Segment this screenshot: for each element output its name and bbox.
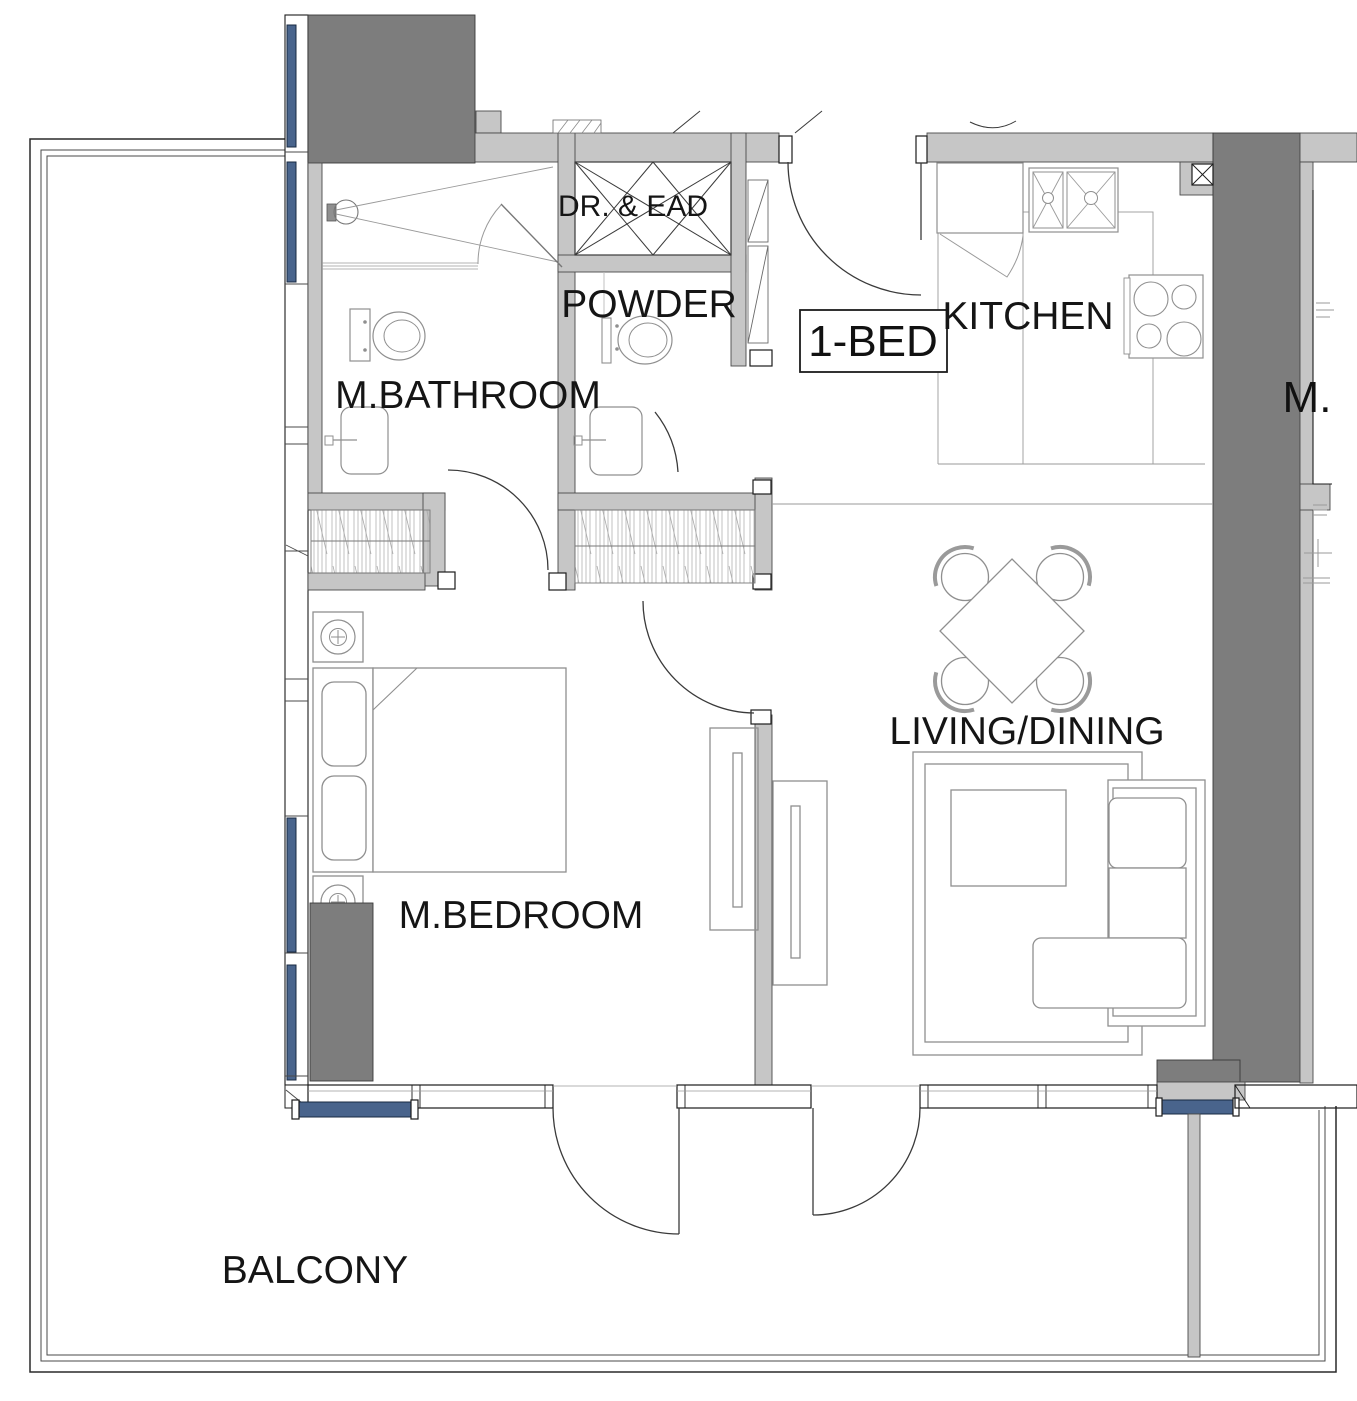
- mattress: [373, 668, 566, 872]
- toilet-icon: [350, 309, 425, 361]
- wardrobe-right-cap-top: [753, 480, 771, 494]
- balcony-wall-band: [292, 1085, 1357, 1357]
- entry-door-jamb: [779, 136, 792, 163]
- wardrobe-right-side-wall: [755, 478, 772, 590]
- kitchen-top-wall: [927, 133, 1213, 162]
- nightstand-lamp-top: [313, 612, 363, 662]
- floor-plan-canvas: DR. & EAD POWDER M.BATHROOM 1-BED KITCHE…: [0, 0, 1357, 1401]
- dark-stub: [1157, 1060, 1240, 1082]
- hall-wall-jamb: [750, 350, 772, 366]
- sofa-chaise: [1033, 938, 1186, 1008]
- stove-icon: [1124, 275, 1203, 358]
- room-label-powder: POWDER: [561, 283, 737, 326]
- window-glazing: [287, 818, 296, 952]
- bedroom-door-jamb: [751, 710, 771, 724]
- fridge-cabinet: [937, 163, 1023, 277]
- balcony-window-sill: [296, 1102, 414, 1117]
- bed: [313, 668, 566, 872]
- balcony-door-living: [813, 1108, 920, 1215]
- room-label-living-dining: LIVING/DINING: [889, 710, 1164, 753]
- party-wall-dark-band: [1213, 133, 1300, 1082]
- adjacent-wall-corner: [1300, 484, 1330, 510]
- shaft-bottom-wall: [558, 255, 746, 272]
- powder-door-arc: [655, 412, 678, 472]
- adjacent-top-wall: [1300, 133, 1357, 162]
- unit-label-text: 1-BED: [808, 317, 938, 366]
- wardrobes: [311, 510, 755, 583]
- balcony-partition: [1188, 1114, 1200, 1357]
- wardrobe-left: [311, 510, 430, 573]
- window-wall-segment: [677, 1085, 811, 1108]
- balcony-door-bedroom: [553, 1108, 679, 1234]
- powder-right-wall: [731, 133, 746, 366]
- bathroom-fixtures: [322, 167, 562, 474]
- window-glazing: [287, 965, 296, 1080]
- coffee-table: [951, 790, 1066, 886]
- tv-unit-living: [773, 781, 827, 985]
- sink-icon: [574, 407, 642, 475]
- bathroom-door-arc: [448, 470, 548, 570]
- exterior-window-wall-left: [285, 15, 308, 1108]
- tv-screen: [791, 806, 800, 958]
- floor-plan-page: DR. & EAD POWDER M.BATHROOM 1-BED KITCHE…: [0, 0, 1357, 1401]
- balcony-corner-wall: [1157, 1082, 1245, 1100]
- band-mullions: [412, 1085, 1148, 1108]
- structural-core-topleft: [308, 15, 475, 163]
- bedroom-furniture: [310, 612, 827, 1081]
- room-label-m-bathroom: M.BATHROOM: [335, 374, 601, 417]
- tv-screen: [733, 753, 742, 907]
- structural-column-bedroom: [310, 903, 373, 1081]
- adjacent-room-outline: [1313, 190, 1332, 484]
- room-label-m-bedroom: M.BEDROOM: [399, 894, 644, 937]
- room-label-balcony: BALCONY: [222, 1249, 408, 1292]
- window-glazing: [287, 25, 296, 147]
- wardrobe-right-cap-bottom: [753, 574, 771, 589]
- wardrobe-right-jamb-left: [549, 573, 566, 590]
- living-furniture: [913, 539, 1205, 1055]
- top-wall-step: [476, 111, 501, 133]
- room-label-dr-ead: DR. & EAD: [558, 190, 708, 223]
- door-tick: [795, 111, 822, 133]
- tv-unit-bedroom: [710, 728, 758, 930]
- room-label-kitchen: KITCHEN: [942, 295, 1113, 338]
- bedroom-door-arc: [643, 601, 754, 713]
- kitchen-sink-icon: [1029, 168, 1118, 232]
- room-label-adjacent-partial: M.: [1283, 373, 1332, 422]
- sofa-cushion: [1109, 798, 1186, 868]
- window-wall-segment: [920, 1085, 1157, 1108]
- shower-icon: [322, 167, 562, 269]
- adjacent-window-wall: [1235, 1085, 1357, 1108]
- sink-icon: [325, 407, 388, 474]
- hatched-opening: [553, 120, 601, 133]
- wardrobe-left-bottom-wall: [308, 573, 425, 590]
- dining-set: [927, 539, 1097, 718]
- shower-door: [501, 204, 562, 267]
- kitchen-wall-cap: [916, 136, 927, 163]
- corridor-door-arc: [970, 121, 1016, 128]
- entry-door: [788, 162, 921, 295]
- powder-bottom-wall: [558, 493, 763, 510]
- bathroom-left-wall: [308, 163, 322, 510]
- adjacent-side-wall: [1300, 162, 1313, 1083]
- wardrobe-left-jamb: [438, 572, 455, 589]
- window-glazing: [287, 162, 296, 282]
- wardrobe-right: [575, 510, 755, 583]
- sofa-cushion: [1109, 868, 1186, 938]
- top-wall-details: [553, 111, 1016, 133]
- door-tick: [673, 111, 700, 133]
- balcony-window-sill-right: [1160, 1100, 1235, 1114]
